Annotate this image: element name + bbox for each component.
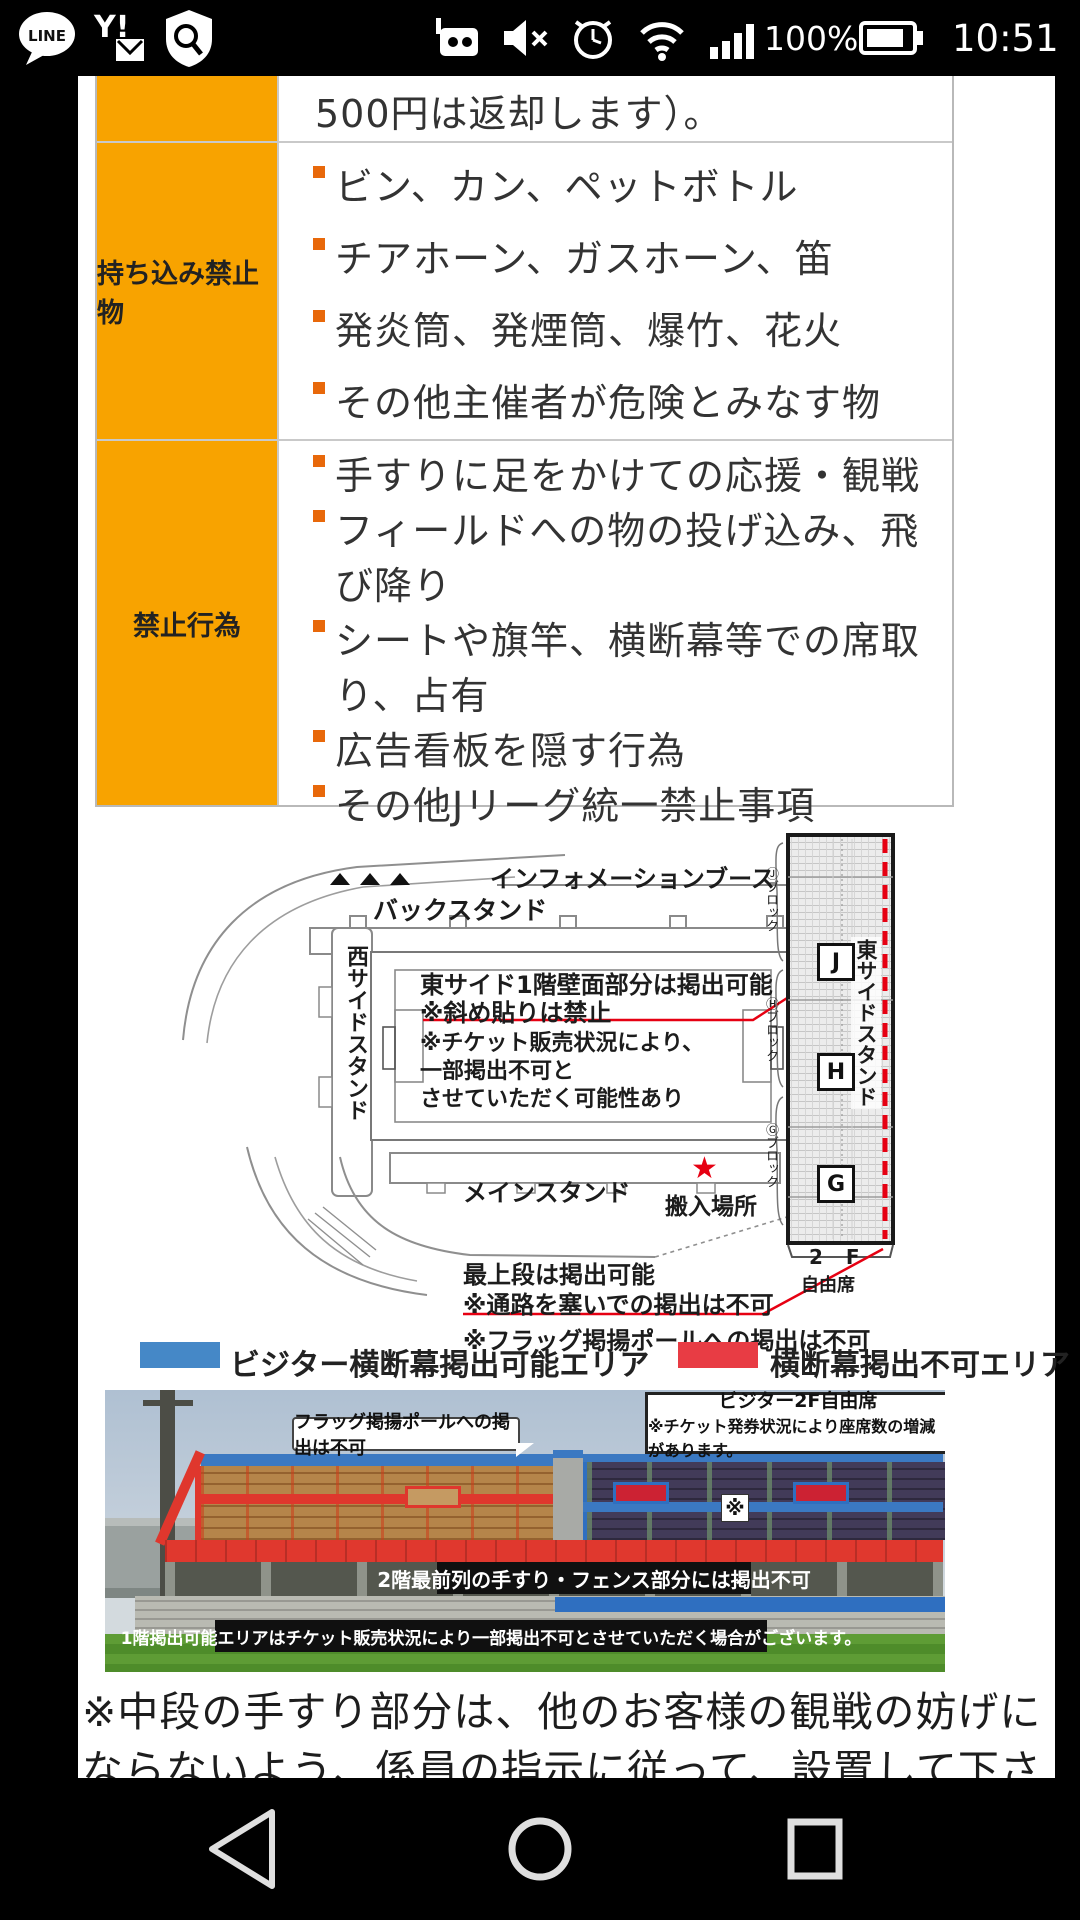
legend-red-swatch xyxy=(678,1342,758,1368)
legend-banned-label: 横断幕掲出不可エリア xyxy=(770,1340,1070,1384)
table-header-cell: 持ち込み禁止物 xyxy=(97,143,279,439)
map-note-no-diagonal: ※斜め貼りは禁止 xyxy=(420,993,611,1028)
list-item: その他主催者が危険とみなす物 xyxy=(313,372,952,427)
phone-screen: LINE Y! xyxy=(0,0,1080,1920)
bullet-icon xyxy=(313,730,325,742)
map-label-free-seat: 自由席 xyxy=(801,1271,855,1297)
table-header-cell: 禁止行為 xyxy=(97,441,279,805)
visitor-2f-title: ビジター2F自由席 xyxy=(719,1390,878,1413)
android-nav-bar xyxy=(0,1778,1080,1920)
bullet-icon xyxy=(313,166,325,178)
map-label-info-booth: インフォメーションブース xyxy=(490,859,775,894)
map-label-east-stand: 東サイドスタンド xyxy=(851,937,881,1109)
list-item: 広告看板を隠す行為 xyxy=(313,720,952,775)
stand-entrance xyxy=(613,1482,669,1504)
bullet-icon xyxy=(313,382,325,394)
block-g-label: Ⓖブロック xyxy=(761,1123,780,1188)
visitor-2f-note: ※チケット発券状況により座席数の増減があります。 xyxy=(648,1413,945,1461)
row-header-label: 禁止行為 xyxy=(133,604,241,643)
bullet-icon xyxy=(313,455,325,467)
stand-left-red-walkway xyxy=(195,1494,553,1504)
first-floor-note-label: 1階掲出可能エリアはチケット販売状況により一部掲出不可とさせていただく場合がござ… xyxy=(215,1620,767,1652)
clock-time: 10:51 xyxy=(952,0,1059,76)
table-row-prohibited-actions: 禁止行為 手すりに足をかけての応援・観戦 フィールドへの物の投げ込み、飛び降り … xyxy=(97,439,952,805)
svg-text:LINE: LINE xyxy=(28,27,66,45)
list-item: ビン、カン、ペットボトル xyxy=(313,156,952,211)
row-header-label: 持ち込み禁止物 xyxy=(97,252,277,330)
web-page: 500円は返却します）。 持ち込み禁止物 ビン、カン、ペットボトル チアホーン、… xyxy=(78,75,1055,1778)
map-label-back-stand: バックスタンド xyxy=(373,891,547,927)
status-bar: LINE Y! xyxy=(0,0,1080,76)
bullet-icon xyxy=(313,620,325,632)
battery-icon xyxy=(858,0,926,76)
map-note-no-aisle: ※通路を塞いでの掲出は不可 xyxy=(463,1285,774,1320)
wifi-icon xyxy=(636,0,688,76)
table-row-partial: 500円は返却します）。 xyxy=(97,75,952,141)
flagpole-callout: フラッグ掲揚ポールへの掲出は不可 xyxy=(292,1417,520,1451)
rail-ban-label: 2階最前列の手すり・フェンス部分には掲出不可 xyxy=(437,1562,751,1594)
map-label-2f: 2 F xyxy=(809,1245,868,1269)
block-h-marker: H xyxy=(817,1053,855,1091)
line-app-icon: LINE xyxy=(16,0,78,76)
list-item: シートや旗竿、横断幕等での席取り、占有 xyxy=(313,610,952,720)
map-note-ticket-3: させていただく可能性あり xyxy=(420,1081,684,1113)
yahoo-mail-icon: Y! xyxy=(92,0,150,76)
bullet-icon xyxy=(313,310,325,322)
list-item: チアホーン、ガスホーン、笛 xyxy=(313,228,952,283)
field-blue-banner-strip xyxy=(555,1597,945,1612)
block-j-label: Ⓙブロック xyxy=(761,867,780,932)
bullet-icon xyxy=(313,510,325,522)
list-item: 手すりに足をかけての応援・観戦 xyxy=(313,445,952,500)
stand-center-strip xyxy=(553,1450,583,1550)
shield-search-icon xyxy=(160,0,218,76)
map-label-main-stand: メインスタンド xyxy=(463,1173,631,1208)
table-cell-text: 500円は返却します）。 xyxy=(279,75,952,138)
mute-icon xyxy=(500,0,552,76)
map-label-west-stand: 西サイドスタンド xyxy=(339,945,371,1121)
legend-blue-swatch xyxy=(140,1342,220,1368)
stand-entrance xyxy=(793,1482,849,1504)
list-item: フィールドへの物の投げ込み、飛び降り xyxy=(313,500,952,610)
legend-allowed-label: ビジター横断幕掲出可能エリア xyxy=(230,1340,649,1384)
carry-in-star-icon: ★ xyxy=(691,1151,718,1186)
back-button[interactable] xyxy=(212,1812,272,1886)
visitor-2f-box: ビジター2F自由席 ※チケット発券状況により座席数の増減があります。 xyxy=(645,1392,945,1454)
map-label-carry-in: 搬入場所 xyxy=(665,1187,757,1221)
stadium-map: インフォメーションブース バックスタンド 西サイドスタンド 東サイド1階壁面部分… xyxy=(95,825,955,1365)
banner-area-legend: ビジター横断幕掲出可能エリア 横断幕掲出不可エリア xyxy=(78,1340,1055,1372)
reference-mark: ※ xyxy=(721,1494,749,1522)
bullet-icon xyxy=(313,785,325,797)
table-row-prohibited-items: 持ち込み禁止物 ビン、カン、ペットボトル チアホーン、ガスホーン、笛 発炎筒、発… xyxy=(97,141,952,439)
home-button[interactable] xyxy=(512,1821,568,1877)
alarm-icon xyxy=(568,0,618,76)
battery-percent: 100% xyxy=(764,0,858,76)
stand-entrance xyxy=(405,1486,461,1508)
stadium-photo: ※ フラッグ掲揚ポールへの掲出は不可 ビジター2F自由席 ※チケット発券状況によ… xyxy=(105,1390,945,1672)
list-item: その他Jリーグ統一禁止事項 xyxy=(313,775,952,830)
rules-table: 500円は返却します）。 持ち込み禁止物 ビン、カン、ペットボトル チアホーン、… xyxy=(95,75,954,807)
notification-icon xyxy=(430,0,482,76)
stand-front-red-band xyxy=(165,1540,943,1562)
block-h-label: Ⓗブロック xyxy=(761,997,780,1062)
table-header-cell xyxy=(97,75,279,141)
recents-button[interactable] xyxy=(791,1822,839,1876)
signal-icon xyxy=(708,0,758,76)
block-j-marker: J xyxy=(817,943,855,981)
list-item: 発炎筒、発煙筒、爆竹、花火 xyxy=(313,300,952,355)
block-g-marker: G xyxy=(817,1165,855,1203)
bullet-icon xyxy=(313,238,325,250)
